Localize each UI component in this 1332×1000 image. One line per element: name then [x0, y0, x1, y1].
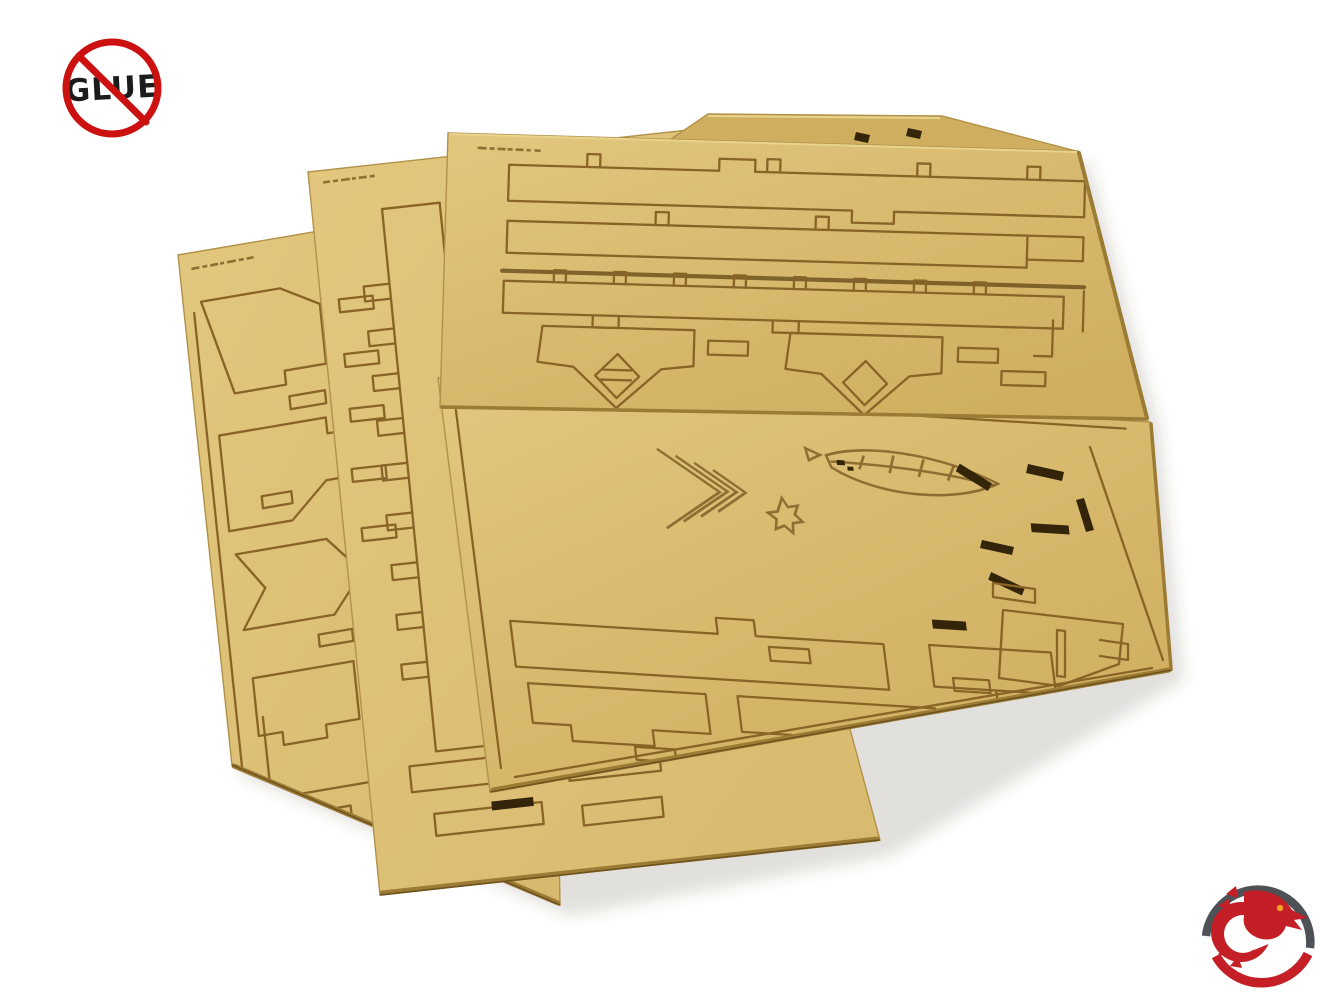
mdf-sheet-4 [440, 133, 1148, 421]
no-glue-badge: GLUE [64, 42, 160, 134]
product-photo-stage: GLUE [0, 0, 1332, 1000]
dragon-eye [1277, 905, 1283, 911]
photo-canvas: GLUE [0, 0, 1332, 1000]
brand-dragon-logo-icon [1206, 886, 1310, 983]
dragon-head [1244, 890, 1308, 939]
